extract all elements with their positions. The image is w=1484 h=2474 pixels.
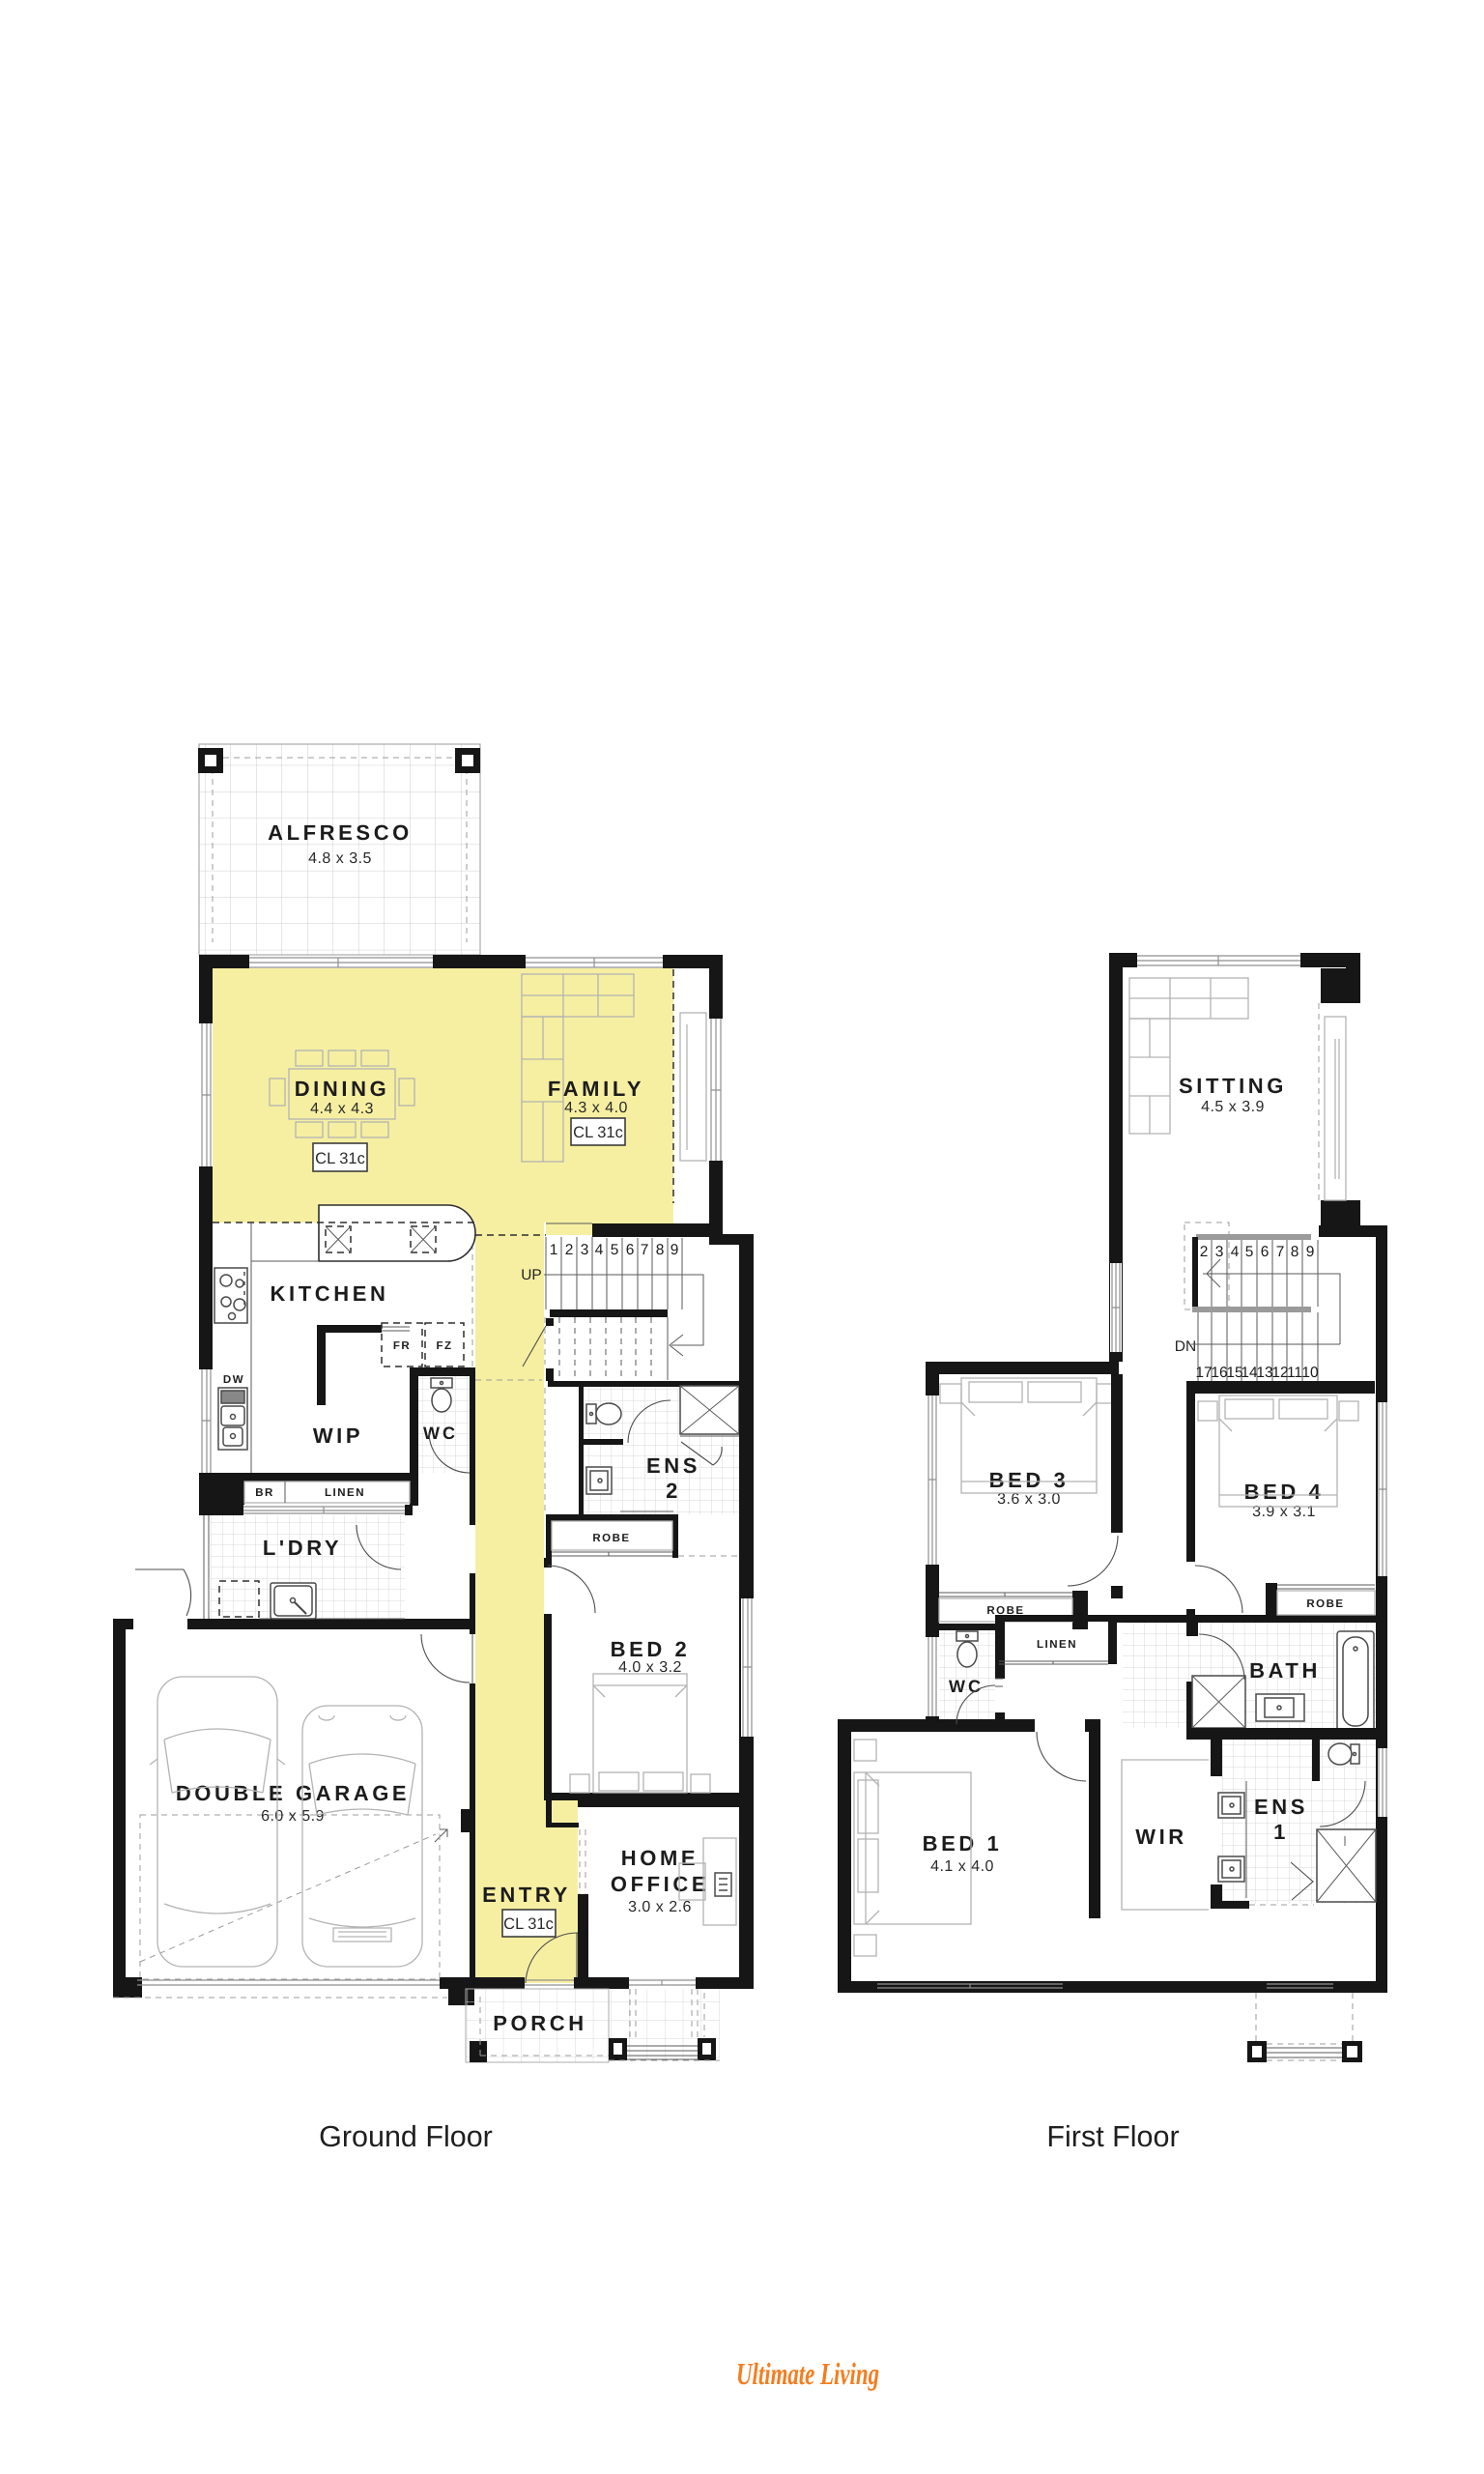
svg-text:WC: WC xyxy=(949,1677,984,1696)
svg-text:10: 10 xyxy=(1301,1365,1319,1381)
svg-text:14: 14 xyxy=(1241,1365,1258,1381)
svg-text:ROBE: ROBE xyxy=(592,1533,630,1544)
svg-text:4: 4 xyxy=(1231,1244,1240,1260)
svg-text:4.5 x 3.9: 4.5 x 3.9 xyxy=(1201,1099,1265,1115)
svg-text:FAMILY: FAMILY xyxy=(548,1077,644,1101)
svg-text:6: 6 xyxy=(1261,1244,1270,1260)
svg-text:OFFICE: OFFICE xyxy=(611,1872,709,1896)
svg-text:DN: DN xyxy=(1175,1338,1196,1355)
svg-text:2: 2 xyxy=(565,1242,574,1258)
svg-text:BED 1: BED 1 xyxy=(923,1831,1003,1855)
svg-text:11: 11 xyxy=(1287,1365,1302,1381)
svg-text:BED 4: BED 4 xyxy=(1244,1480,1325,1504)
svg-text:BR: BR xyxy=(255,1487,274,1499)
svg-text:FZ: FZ xyxy=(436,1340,452,1352)
svg-text:Ground Floor: Ground Floor xyxy=(319,2120,493,2153)
svg-text:FR: FR xyxy=(393,1340,411,1352)
svg-text:ALFRESCO: ALFRESCO xyxy=(268,820,413,845)
svg-text:First Floor: First Floor xyxy=(1046,2120,1179,2153)
svg-text:LINEN: LINEN xyxy=(325,1487,365,1499)
svg-text:16: 16 xyxy=(1211,1365,1227,1381)
svg-text:7: 7 xyxy=(1276,1244,1285,1260)
svg-text:8: 8 xyxy=(1291,1244,1299,1260)
svg-text:4: 4 xyxy=(595,1242,604,1258)
svg-text:ENS: ENS xyxy=(1254,1795,1308,1819)
svg-text:13: 13 xyxy=(1256,1365,1272,1381)
svg-text:ROBE: ROBE xyxy=(1306,1598,1344,1610)
svg-text:3: 3 xyxy=(581,1242,589,1258)
svg-text:UP: UP xyxy=(521,1267,542,1283)
svg-text:9: 9 xyxy=(1306,1244,1315,1260)
svg-text:DOUBLE GARAGE: DOUBLE GARAGE xyxy=(176,1781,410,1805)
svg-text:4.1 x 4.0: 4.1 x 4.0 xyxy=(930,1858,994,1875)
svg-text:9: 9 xyxy=(671,1242,679,1258)
svg-text:3: 3 xyxy=(1215,1244,1224,1260)
svg-text:6.0 x 5.9: 6.0 x 5.9 xyxy=(261,1808,325,1825)
svg-text:3.0 x 2.6: 3.0 x 2.6 xyxy=(628,1899,692,1915)
svg-text:2: 2 xyxy=(666,1479,681,1503)
svg-text:BATH: BATH xyxy=(1249,1658,1321,1683)
svg-text:Ultimate Living: Ultimate Living xyxy=(736,2356,879,2391)
svg-text:CL 31c: CL 31c xyxy=(503,1915,554,1933)
svg-text:7: 7 xyxy=(641,1242,649,1258)
svg-text:L'DRY: L'DRY xyxy=(263,1536,342,1560)
svg-text:4.4 x 4.3: 4.4 x 4.3 xyxy=(310,1101,374,1117)
svg-text:1: 1 xyxy=(550,1242,558,1258)
svg-text:ENTRY: ENTRY xyxy=(482,1883,571,1907)
svg-text:HOME: HOME xyxy=(621,1846,699,1870)
svg-text:CL 31c: CL 31c xyxy=(315,1150,365,1167)
svg-text:2: 2 xyxy=(1200,1244,1209,1260)
svg-text:BED 3: BED 3 xyxy=(989,1468,1070,1492)
svg-text:WIP: WIP xyxy=(313,1424,363,1448)
svg-text:DINING: DINING xyxy=(295,1077,390,1101)
svg-text:8: 8 xyxy=(656,1242,665,1258)
svg-text:5: 5 xyxy=(611,1242,619,1258)
svg-text:4.8 x 3.5: 4.8 x 3.5 xyxy=(308,850,372,867)
svg-text:PORCH: PORCH xyxy=(493,2011,586,2035)
svg-text:1: 1 xyxy=(1273,1820,1289,1844)
svg-text:WIR: WIR xyxy=(1135,1825,1187,1849)
svg-text:DW: DW xyxy=(223,1374,244,1386)
svg-text:WC: WC xyxy=(423,1424,458,1443)
svg-text:17: 17 xyxy=(1195,1365,1212,1381)
svg-text:CL 31c: CL 31c xyxy=(573,1124,623,1141)
svg-text:BED 2: BED 2 xyxy=(611,1637,691,1661)
svg-text:6: 6 xyxy=(626,1242,635,1258)
svg-text:KITCHEN: KITCHEN xyxy=(271,1281,389,1306)
svg-text:SITTING: SITTING xyxy=(1179,1074,1287,1098)
svg-text:5: 5 xyxy=(1245,1244,1254,1260)
svg-text:4.3 x 4.0: 4.3 x 4.0 xyxy=(564,1100,628,1116)
svg-text:ENS: ENS xyxy=(646,1453,700,1478)
svg-text:LINEN: LINEN xyxy=(1037,1639,1077,1651)
